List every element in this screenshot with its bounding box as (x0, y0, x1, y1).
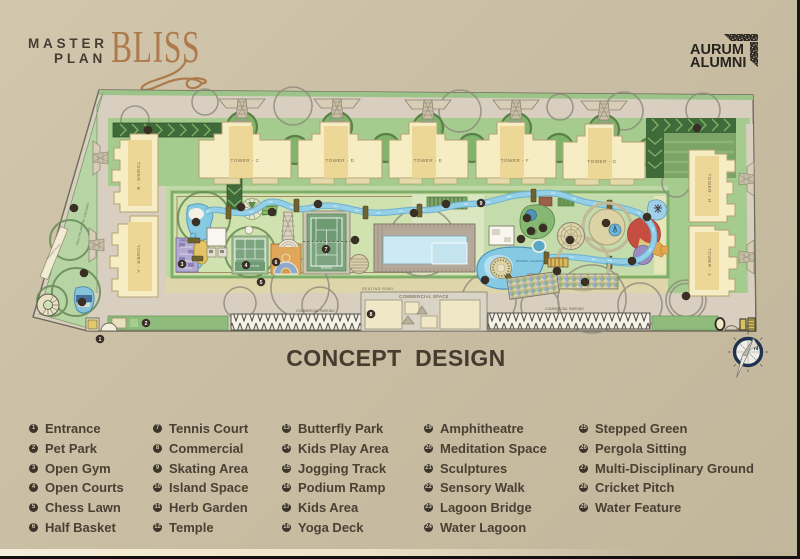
svg-text:TOWER - G: TOWER - G (587, 159, 616, 164)
svg-text:COMMERCIAL SPACE: COMMERCIAL SPACE (399, 294, 449, 299)
svg-text:5: 5 (260, 280, 263, 286)
svg-text:TOWER - A: TOWER - A (136, 245, 141, 274)
svg-text:7: 7 (325, 247, 328, 253)
svg-text:2: 2 (145, 321, 148, 327)
svg-text:1: 1 (99, 337, 102, 343)
svg-text:WATER LAGOON: WATER LAGOON (516, 259, 544, 263)
svg-text:TOWER - D: TOWER - D (326, 158, 355, 163)
svg-text:SEATING RING: SEATING RING (362, 287, 394, 291)
svg-text:TOWER - E: TOWER - E (414, 158, 443, 163)
svg-text:TENNIS: TENNIS (320, 266, 332, 270)
svg-text:4: 4 (245, 263, 248, 269)
svg-text:TOWER - B: TOWER - B (136, 162, 141, 191)
svg-text:COMMERCIAL PARKING: COMMERCIAL PARKING (545, 307, 584, 311)
svg-text:COMMERCIAL PARKING: COMMERCIAL PARKING (296, 309, 335, 313)
svg-text:6: 6 (275, 260, 278, 266)
svg-text:TOWER - J: TOWER - J (707, 248, 712, 276)
svg-text:TOWER - H: TOWER - H (707, 174, 712, 203)
svg-text:TOWER - C: TOWER - C (231, 158, 260, 163)
svg-text:8: 8 (370, 312, 373, 318)
svg-text:TOWER - F: TOWER - F (501, 158, 529, 163)
svg-text:9: 9 (480, 201, 483, 207)
svg-text:3: 3 (181, 262, 184, 268)
